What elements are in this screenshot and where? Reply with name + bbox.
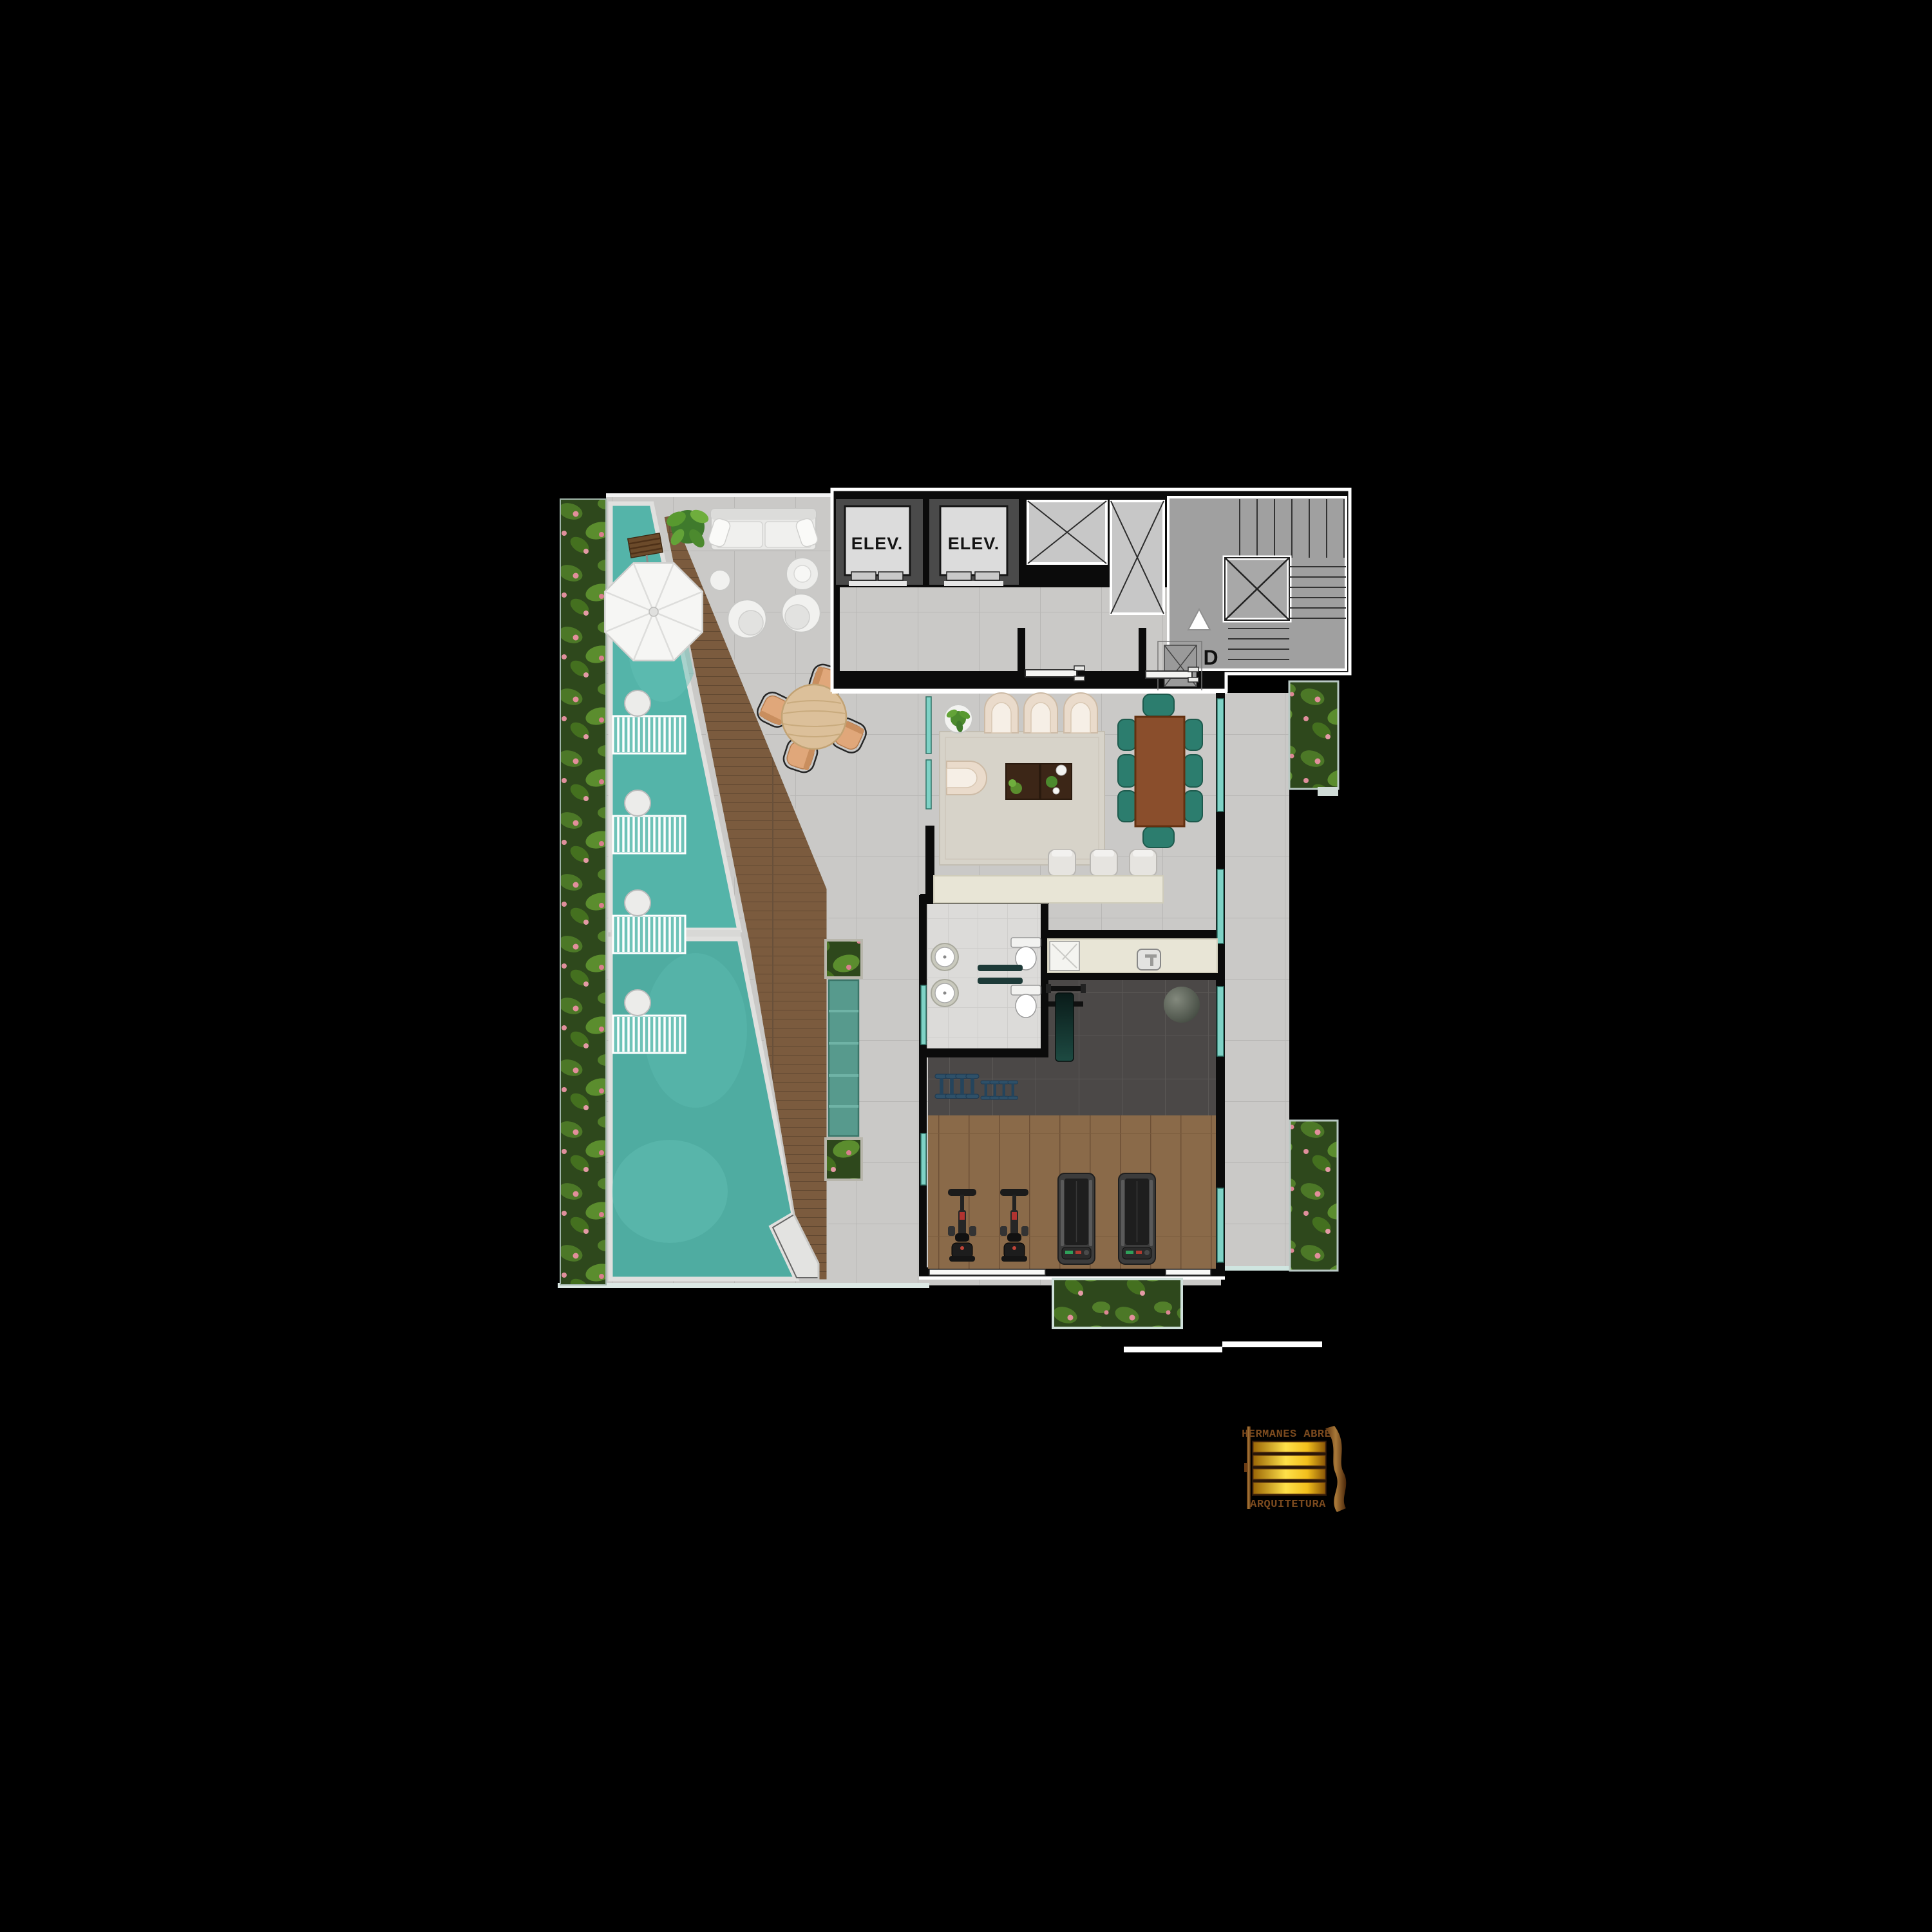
arch-armchair bbox=[1064, 693, 1097, 733]
right-planter-top bbox=[1289, 681, 1338, 796]
right-planter-bottom bbox=[1290, 1121, 1338, 1271]
pool-step-stone bbox=[625, 790, 650, 816]
toilet bbox=[1011, 938, 1041, 947]
scale-bar-segment bbox=[1222, 1341, 1322, 1347]
wall bbox=[925, 826, 934, 896]
deck-planter-box bbox=[826, 1139, 862, 1180]
exercise-ball bbox=[1164, 987, 1200, 1023]
glass-panel bbox=[1217, 699, 1224, 811]
arch-armchair bbox=[985, 693, 1018, 733]
service-shaft-2 bbox=[1111, 501, 1164, 614]
coffee-table bbox=[1006, 764, 1039, 799]
wall bbox=[1041, 930, 1225, 939]
bathroom-door bbox=[978, 965, 1023, 971]
glass-panel bbox=[921, 1133, 926, 1185]
deck-bench bbox=[829, 980, 858, 1136]
left-garden-strip bbox=[560, 499, 606, 1285]
glass-panel bbox=[1217, 1188, 1224, 1262]
floor-plan-drawing: ELEV. ELEV. bbox=[0, 0, 1932, 1932]
dining-chair bbox=[1118, 755, 1136, 787]
dining-chair bbox=[1143, 694, 1174, 716]
wall-stub bbox=[1018, 628, 1025, 672]
dining-chair bbox=[1143, 827, 1174, 848]
scale-bar bbox=[1124, 1341, 1322, 1352]
in-pool-lounger bbox=[613, 1016, 685, 1053]
stair-landing-shaft bbox=[1225, 558, 1289, 620]
wall bbox=[1041, 904, 1048, 1059]
deck-planter-box bbox=[826, 940, 862, 978]
pool-step-stone bbox=[625, 990, 650, 1016]
elevator-2-label: ELEV. bbox=[948, 534, 1000, 553]
logo-title: HERMANES ABREU bbox=[1242, 1428, 1338, 1441]
treadmill bbox=[1058, 1173, 1095, 1264]
dining-table bbox=[1135, 717, 1184, 826]
wash-counter bbox=[1048, 939, 1217, 972]
in-pool-lounger bbox=[613, 716, 685, 753]
plant-side-table bbox=[944, 705, 972, 733]
treadmill bbox=[1119, 1173, 1155, 1264]
gym-glass-door bbox=[929, 1269, 1045, 1275]
logo-subtitle: ARQUITETURA bbox=[1250, 1499, 1326, 1511]
architect-logo: HERMANES ABREU ARQUITETURA bbox=[1242, 1426, 1346, 1512]
wall bbox=[919, 895, 927, 1276]
counter-stool bbox=[1048, 850, 1075, 876]
dining-chair bbox=[1184, 791, 1202, 822]
logo-flag bbox=[1252, 1441, 1327, 1496]
bathrooms bbox=[928, 904, 1041, 1048]
bathroom-door bbox=[978, 978, 1023, 984]
dining-chair bbox=[1184, 719, 1202, 750]
coffee-table bbox=[1041, 764, 1072, 799]
side-table-large bbox=[786, 558, 819, 590]
dining-chair bbox=[1184, 755, 1202, 787]
pool-step-stone bbox=[625, 890, 650, 916]
glass-panel bbox=[1217, 869, 1224, 943]
gym-dark-floor bbox=[928, 1057, 1048, 1115]
elevator-1: ELEV. bbox=[836, 499, 923, 586]
glass-panel bbox=[926, 760, 931, 809]
scale-bar-segment bbox=[1124, 1347, 1222, 1352]
outdoor-dining-table bbox=[782, 685, 846, 749]
side-corridor-floor bbox=[1225, 693, 1289, 1270]
stair-direction-label: D bbox=[1203, 646, 1218, 669]
glass-panel bbox=[1217, 987, 1224, 1056]
toilet bbox=[1011, 985, 1041, 995]
outdoor-sofa bbox=[707, 509, 819, 550]
glass-panel bbox=[921, 985, 926, 1045]
terrace-bottom-edge bbox=[558, 1283, 929, 1288]
arch-armchair-left bbox=[947, 761, 987, 795]
elevator-2: ELEV. bbox=[929, 499, 1019, 586]
in-pool-lounger bbox=[613, 916, 685, 953]
dining-chair bbox=[1118, 791, 1136, 822]
terrace-top-edge bbox=[606, 493, 832, 497]
floor-plan-canvas: ELEV. ELEV. bbox=[0, 0, 1932, 1932]
service-shaft-1 bbox=[1028, 501, 1106, 563]
counter-stool bbox=[1090, 850, 1117, 876]
wall bbox=[920, 1048, 1048, 1057]
wall-highlight bbox=[832, 690, 1227, 694]
toilet-bowl bbox=[1016, 994, 1036, 1018]
arch-armchair bbox=[1024, 693, 1057, 733]
side-table bbox=[710, 570, 730, 591]
lounge-chair bbox=[782, 594, 820, 632]
bottom-planter bbox=[1053, 1279, 1182, 1328]
pool-step-stone bbox=[625, 690, 650, 716]
corridor-bottom-edge bbox=[1225, 1266, 1289, 1271]
kitchen-counter bbox=[934, 876, 1163, 903]
counter-stool bbox=[1130, 850, 1157, 876]
elevator-1-label: ELEV. bbox=[851, 534, 904, 553]
wall-stub bbox=[1139, 628, 1146, 672]
dining-chair bbox=[1118, 719, 1136, 750]
faucet-sink bbox=[1137, 949, 1160, 970]
glass-panel bbox=[926, 697, 931, 753]
gym-glass-door bbox=[1166, 1269, 1211, 1275]
utility-core: ELEV. ELEV. bbox=[832, 489, 1350, 694]
bathroom-floor bbox=[928, 904, 1041, 1048]
stairwell bbox=[1168, 497, 1346, 670]
lounge-chair bbox=[728, 600, 766, 638]
in-pool-lounger bbox=[613, 816, 685, 853]
